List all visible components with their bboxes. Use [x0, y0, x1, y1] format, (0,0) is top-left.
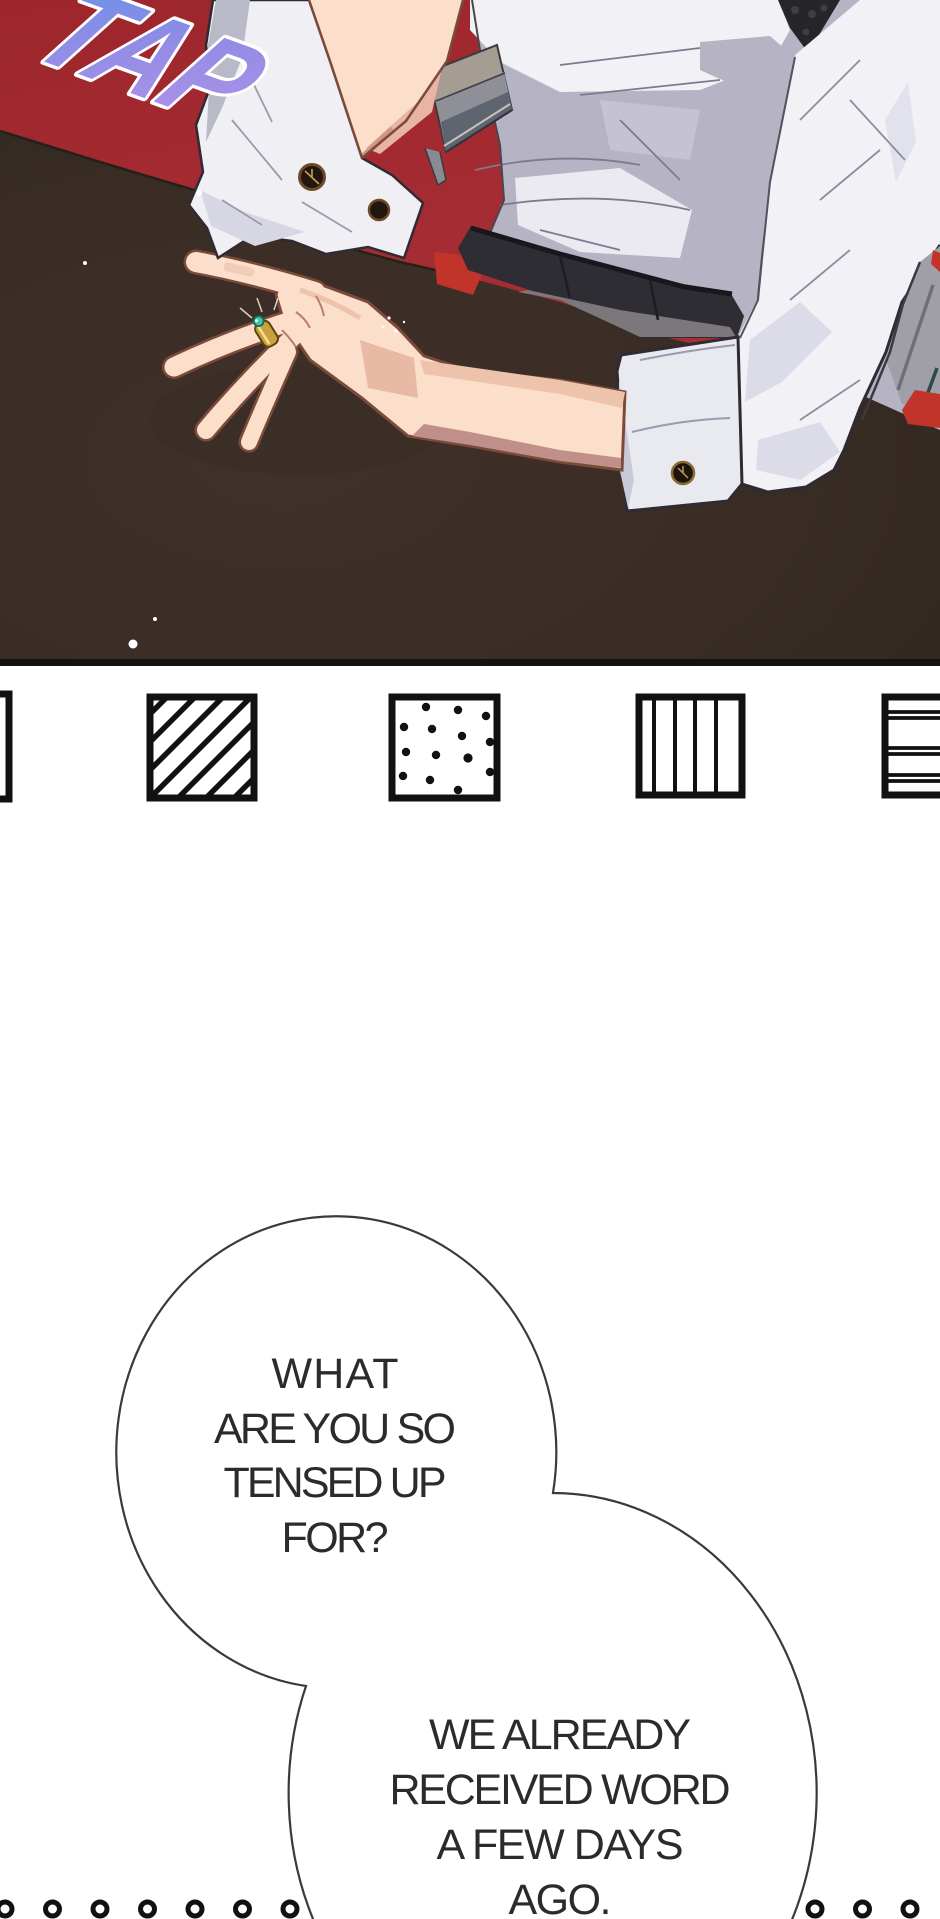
svg-text:WE ALREADY: WE ALREADY: [429, 1711, 691, 1759]
svg-text:WHAT: WHAT: [272, 1350, 399, 1398]
svg-text:ARE YOU SO: ARE YOU SO: [214, 1405, 456, 1453]
svg-text:FOR?: FOR?: [282, 1514, 389, 1562]
svg-text:AGO.: AGO.: [509, 1876, 612, 1919]
svg-text:A FEW DAYS: A FEW DAYS: [437, 1821, 684, 1869]
svg-text:RECEIVED WORD: RECEIVED WORD: [390, 1766, 731, 1814]
svg-text:TENSED UP: TENSED UP: [224, 1459, 447, 1507]
